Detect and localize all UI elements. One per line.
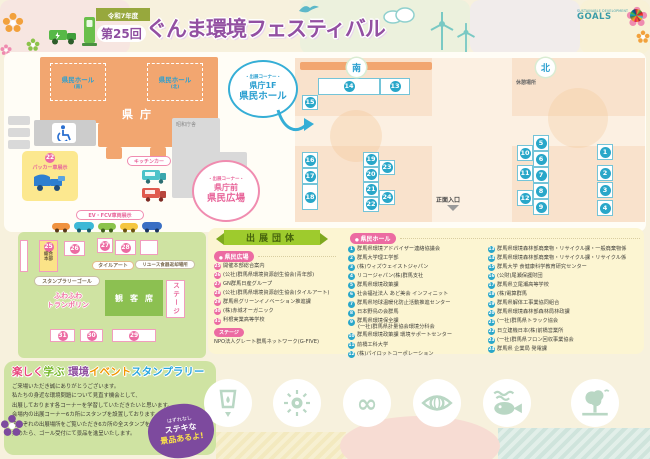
exhibitor-row: 3 (株)ウィズウェイストジャパン [348,264,486,271]
sdg-circle: ∞ [343,379,391,427]
sdg-circle [571,379,619,427]
sdg-circle [273,379,321,427]
corner-line1: 県庁1F [249,81,276,91]
exhibitor-number: 31 [214,318,221,325]
exhibitor-row: 26 (公社)群馬県環境資源創生協会(青年部) [214,272,339,279]
sdgs-goals-text: GOALS [577,13,628,22]
exhibitor-number: 20 [488,310,495,317]
exhibitor-name: 群馬県解体工事業協同組合 [497,300,559,306]
booth-number: 12 [520,193,531,204]
exhibitor-name-wrap: 前橋工科大学 [357,342,388,348]
hq-label: 本部 [44,257,53,262]
reuse-return-box [140,240,158,255]
exhibitor-name: (株)赤城オーガニック [223,308,274,314]
booth-number: 21 [366,184,377,195]
wheelchair-icon [57,125,71,141]
description-line: 出展しております各コーナーを学習していただきたいと思います。 [12,402,173,411]
deco-stripes [216,432,346,459]
exhibitor-number: 23 [488,337,495,344]
description-line: 私たちの身近な環境問題について見直す機会として、 [12,392,173,401]
booth-cell: 23 [379,160,395,175]
eye-globe-icon [420,386,454,420]
booth-number: 7 [536,170,547,181]
exhibitor-name-wrap: 群馬県グリーンイノベーション推進課 [223,299,311,305]
booth-cell: 1 [597,144,613,160]
exhibitor-number: 9 [348,319,355,326]
exhibitor-name-wrap: 群馬県環境政策課 [357,282,399,288]
stage-box: ステージ [166,280,185,318]
corner-line2: 県民ホール [239,91,287,103]
wind-turbine-icon [450,20,482,54]
exhibitor-number: 18 [488,291,495,298]
hall-south-wing: 県民ホール (南) [50,63,106,101]
exhibitor-name: GN群馬日産グループ [223,281,272,287]
exhibitor-number: 25 [214,263,221,270]
era-ribbon: 令和7年度 [96,8,150,21]
green-truck-icon [48,26,80,46]
flower-icon [26,38,40,52]
booth-number: 5 [536,138,547,149]
exhibitor-name-wrap: 群馬県環境保全課 (一社)群馬県計量協会環境分科会 [357,319,435,331]
description-line: ご来場いただき誠にありがとうございます。 [12,383,173,392]
exhibitor-name-wrap: (公社)群馬県環境資源創生協会(青年部) [223,272,314,278]
exhibitor-name: 群馬県環境森林部森林局林政課 [497,309,570,315]
sdgs-logo: SUSTAINABLE DEVELOPMENT GOALS [577,9,643,22]
exhibitor-row: 8 日本野鳥の会群馬 [348,310,486,317]
exhibitor-number: 7 [348,301,355,308]
plaza-exhibitor-list: 25 開催本部総合案内 26 (公社)群馬県環境資源創生協会(青年部) 27 G… [214,263,339,327]
booth-cell: 3 [597,182,613,198]
booth-number: 25 [44,242,54,252]
hall-north-wing: 県民ホール (北) [147,63,203,101]
exhibitor-name-wrap: 日本野鳥の会群馬 [357,310,399,316]
booth-number: 17 [305,171,316,182]
exhibitor-name: (公財)尾瀬保護財団 [497,273,543,279]
booth-cell: 2 [597,165,613,181]
exhibitor-name-wrap: (株)ウィズウェイストジャパン [357,264,428,270]
ev-charger-icon [82,16,97,46]
exhibitor-number: 2 [348,255,355,262]
exhibitor-name: (株)電算群馬 [497,291,527,297]
exhibitor-name: 群馬県環境アドバイザー連絡協議会 [357,246,440,252]
deco-stripes [498,428,650,459]
wing-label: 県民ホール [62,74,95,84]
stamp-goal-label: スタンプラリーゴール [34,276,100,286]
trampoline-line1: ふわふわ [38,292,98,301]
booth-cell: 11 [517,165,533,181]
exhibitor-name-wrap: 利根実業高等学校 [223,318,265,324]
exhibitor-name: (株)ウィズウェイストジャパン [357,264,428,270]
north-badge: 北 [536,58,555,77]
hall-exhibitor-list-left: 1 群馬県環境アドバイザー連絡協議会 2 群馬大学理工学部 3 (株)ウィズウェ… [348,246,486,360]
description-line: 会場内の出展コーナー6カ所にスタンプを設置しております。 [12,411,173,420]
sdgs-wheel-icon [630,9,643,22]
flower-icon [636,30,650,44]
divider [400,238,640,239]
title-part: 環境 [68,366,89,378]
exhibitor-name: 群馬県環境政策課 環境サポートセンター [357,332,452,338]
booth-number: 4 [600,203,611,214]
booth-cell: 29 [112,329,156,342]
booth-cell: 28 [115,240,136,255]
exhibitor-name-wrap: (一社)群馬県トラック協会 [497,319,558,325]
exhibitor-number: 10 [348,333,355,340]
booth-cell: 19 [363,152,379,167]
booth-number: 1 [600,147,611,158]
title-part: イベント [89,366,131,378]
exhibitor-name-cont: (一社)群馬県計量協会環境分科会 [358,325,435,331]
exhibitor-name-wrap: 群馬県環境森林部廃棄物・リサイクル課・リサイクル係 [497,255,626,261]
wing-label: 県民ホール [159,74,192,84]
map-decoration [548,88,608,148]
exhibitor-name: 前橋工科大学 [357,342,388,348]
exhibitor-name-wrap: 群馬県 企業局 発電課 [497,346,547,352]
garbage-truck-icon [30,171,70,193]
exhibitor-name: (一社)群馬県トラック協会 [497,318,558,324]
packer-label: パッカー車展示 [32,164,67,171]
exhibitor-row: 5 群馬県環境政策課 [348,282,486,289]
exhibitor-row: 22 日立建機日本(株)前橋営業所 [488,328,644,335]
exhibitor-name: (一社)群馬県フロン回収事業協会 [497,337,574,343]
kencho-label: 県庁 [88,106,192,122]
title-part: 学ぶ [44,366,69,378]
stamp-rally-title: 楽しく学ぶ 環境イベントスタンプラリー [12,364,204,379]
exhibitor-row: 19 群馬県解体工事業協同組合 [488,301,644,308]
exhibitor-row: 7 群馬県地球温暖化防止活動推進センター [348,301,486,308]
exhibitor-name-wrap: 群馬県環境森林部森林局林政課 [497,310,570,316]
flower-icon [0,414,24,438]
infinity-icon: ∞ [357,391,378,416]
exhibitor-number: 28 [214,290,221,297]
booth-number: 22 [45,153,55,163]
exhibitor-name-wrap: (株)パイロットコーポレーション [357,351,434,357]
exhibitor-name: 群馬県 企業局 発電課 [497,346,547,352]
exhibitor-name-wrap: 群馬大学 食健康科学教育研究センター [497,264,587,270]
exhibitor-row: 21 (一社)群馬県トラック協会 [488,319,644,326]
booth-cell: 6 [533,151,549,167]
exhibitor-name-wrap: 開催本部総合案内 [223,263,265,269]
kencho-building [106,147,122,159]
booth-number: 19 [366,154,377,165]
exhibitor-name-wrap: (公財)尾瀬保護財団 [497,273,543,279]
showa-label: 昭和庁舎 [176,121,196,128]
exhibitor-row: 24 群馬県 企業局 発電課 [488,346,644,353]
event-flyer: 令和7年度 第25回 ぐんま環境フェスティバル SUSTAINABLE DEVE… [0,0,650,459]
sdg-circle [483,379,531,427]
exhibitor-number: 4 [348,273,355,280]
exhibitor-row: 13 群馬県環境森林部廃棄物・リサイクル課・一般廃棄物係 [488,246,644,253]
exhibitor-name: 群馬大学 食健康科学教育研究センター [497,264,587,270]
exhibitor-number: 12 [348,351,355,358]
exhibitor-number: 17 [488,282,495,289]
booth-cell: 30 [80,329,103,342]
exhibitor-name: 群馬大学理工学部 [357,255,399,261]
exhibitor-row: 31 利根実業高等学校 [214,318,339,325]
parking-block [8,128,30,137]
booth-number: 28 [121,243,131,253]
corner-line2: 県民広場 [207,193,245,205]
booth-cell: 12 [517,190,533,206]
exhibitor-name-wrap: 群馬県環境政策課 環境サポートセンター [357,333,452,339]
tree-icon [578,386,612,420]
exhibitor-name: 群馬県環境政策課 [357,282,399,288]
trampoline-line2: トランポリン [38,301,98,310]
stage-exhibitor: NPO法人グレート群馬ネットワーク(G-FIVE) [214,338,319,345]
exhibitor-row: 27 GN群馬日産グループ [214,281,339,288]
exhibitor-number: 26 [214,272,221,279]
booth-cell: 13 [380,78,410,95]
booth-cell: 9 [533,199,549,215]
exhibitor-row: 29 群馬県グリーンイノベーション推進課 [214,299,339,306]
exhibitor-name: リコージャパン(株)群馬支社 [357,273,423,279]
section-badge: 県民ホール [350,233,396,244]
wing-sublabel: (南) [74,84,83,90]
booth-number: 27 [100,241,110,251]
kencho-building [98,123,178,147]
booth-number: 30 [87,331,97,341]
booth-cell: 24 [379,190,395,205]
exhibitor-name: 群馬県地球温暖化防止活動推進センター [357,300,450,306]
entrance-label: 正面入口 [436,195,460,204]
corner-line1: 県庁前 [214,183,238,193]
entrance-arrow-icon [447,205,459,211]
exhibitor-row: 20 群馬県環境森林部森林局林政課 [488,310,644,317]
exhibitor-name-wrap: 社会福祉法人 あど美会 インフィニット [357,291,448,297]
fish-icon [490,386,524,420]
pastel-shape [470,0,580,54]
arrow-icon [272,106,316,140]
exhibitor-row: 12 (株)パイロットコーポレーション [348,351,486,358]
exhibitor-name: 群馬県立尾瀬高等学校 [497,282,549,288]
exhibitor-name: 利根実業高等学校 [223,317,265,323]
exhibitor-number: 27 [214,281,221,288]
exhibitor-number: 14 [488,255,495,262]
booth-cell: 4 [597,200,613,216]
booth-cell: 7 [533,167,549,183]
cloud-icon [382,6,416,24]
booth-number: 3 [600,185,611,196]
booth-number: 2 [600,168,611,179]
exhibitor-number: 24 [488,346,495,353]
booth-cell: 20 [363,167,379,182]
flower-icon [2,12,24,34]
booth-cell: 8 [533,183,549,199]
exhibitor-name-wrap: 日立建機日本(株)前橋営業所 [497,328,563,334]
exhibitor-row: 2 群馬大学理工学部 [348,255,486,262]
exhibitor-number: 1 [348,246,355,253]
hall-wall [300,62,432,70]
exhibitor-name-wrap: 群馬大学理工学部 [357,255,399,261]
stage-section-badge: ステージ [214,328,244,337]
booth-number: 16 [305,155,316,166]
exhibitor-number: 22 [488,328,495,335]
water-glass-icon [212,387,244,419]
booth-cell: 22 [363,197,379,212]
exhibitor-number: 16 [488,273,495,280]
exhibitor-name-wrap: 群馬県環境アドバイザー連絡協議会 [357,246,440,252]
plaza-corner-badge: ・出展コーナー・ 県庁前 県民広場 [192,160,260,222]
exhibitor-row: 11 前橋工科大学 [348,342,486,349]
booth-number: 18 [305,192,316,203]
audience-seats: 観客席 [105,280,163,316]
exhibitor-row: 23 (一社)群馬県フロン回収事業協会 [488,337,644,344]
exhibitor-name-wrap: 群馬県環境森林部廃棄物・リサイクル課・一般廃棄物係 [497,246,626,252]
exhibitor-number: 29 [214,299,221,306]
booth-cell: 16 [302,152,318,168]
exhibitor-name: (公社)群馬県環境資源創生協会(タイルアート) [223,290,329,296]
exhibitor-number: 15 [488,264,495,271]
exhibitor-row: 17 群馬県立尾瀬高等学校 [488,282,644,289]
title-part: 楽しく [12,366,44,378]
exhibitor-number: 13 [488,246,495,253]
exhibitor-row: 1 群馬県環境アドバイザー連絡協議会 [348,246,486,253]
exhibitor-row: 28 (公社)群馬県環境資源創生協会(タイルアート) [214,290,339,297]
hall-exhibitor-list-right: 13 群馬県環境森林部廃棄物・リサイクル課・一般廃棄物係 14 群馬県環境森林部… [488,246,644,355]
booth-cell: 5 [533,135,549,151]
exhibitor-row: 14 群馬県環境森林部廃棄物・リサイクル課・リサイクル係 [488,255,644,262]
kitchen-car-label: キッチンカー [127,156,171,166]
booth-cell: 17 [302,168,318,184]
exhibitor-row: 4 リコージャパン(株)群馬支社 [348,273,486,280]
exhibitor-row: 6 社会福祉法人 あど美会 インフィニット [348,291,486,298]
exhibitor-name-wrap: GN群馬日産グループ [223,281,272,287]
exhibitor-name: 日本野鳥の会群馬 [357,309,399,315]
exhibitor-number: 3 [348,264,355,271]
plaza-section-header: 県民広場 [214,251,336,262]
wing-sublabel: (北) [171,84,180,90]
exhibitor-name: 社会福祉法人 あど美会 インフィニット [357,291,448,297]
divider [258,256,336,257]
booth-number: 13 [390,81,401,92]
exhibitor-name-wrap: (株)赤城オーガニック [223,308,274,314]
edition-label: 第25回 [97,25,146,42]
booth-cell: 27 [97,238,113,253]
accessible-parking [52,123,76,143]
reuse-label: リユース食器返却場所 [135,260,195,269]
food-truck-icon [141,168,167,184]
booth-number: 14 [344,81,355,92]
booth-cell: 21 [363,182,379,197]
exhibitor-name-wrap: (公社)群馬県環境資源創生協会(タイルアート) [223,290,329,296]
sun-energy-icon [281,387,313,419]
exhibitor-row: 10 群馬県環境政策課 環境サポートセンター [348,333,486,340]
exhibitor-number: 19 [488,301,495,308]
booth-number: 8 [536,186,547,197]
booth-cell: 18 [302,184,318,210]
exhibitor-name-wrap: (一社)群馬県フロン回収事業協会 [497,337,574,343]
booth-number: 11 [520,168,531,179]
booth-number: 22 [366,199,377,210]
parking-block [8,116,30,125]
exhibitor-number: 6 [348,291,355,298]
booth-number: 20 [366,169,377,180]
exhibitor-number: 30 [214,308,221,315]
title-part: スタンプラリー [131,366,204,378]
booth-number: 10 [520,148,531,159]
booth-cell: 10 [517,145,533,161]
exhibitor-name-wrap: 群馬県立尾瀬高等学校 [497,282,549,288]
exhibitor-name: (公社)群馬県環境資源創生協会(青年部) [223,272,314,278]
exhibitor-name: 開催本部総合案内 [223,263,265,269]
booth-cell: 26 [64,241,85,256]
booth-number: 9 [536,202,547,213]
section-badge: 県民広場 [214,251,254,262]
packer-truck-area: 22 パッカー車展示 [22,151,78,201]
panel-title-ribbon: 出展団体 [224,230,320,245]
booth-number: 6 [536,154,547,165]
page-title: ぐんま環境フェスティバル [146,13,385,43]
booth-cell: 31 [50,329,75,342]
exhibitor-name: 群馬県環境森林部廃棄物・リサイクル課・リサイクル係 [497,255,626,261]
booth-number: 29 [129,331,139,341]
exhibitor-name-wrap: 群馬県地球温暖化防止活動推進センター [357,301,450,307]
exhibitor-number: 21 [488,319,495,326]
exhibitor-row: 16 (公財)尾瀬保護財団 [488,273,644,280]
booth-number: 23 [382,162,393,173]
trampoline-label: ふわふわ トランポリン [38,292,98,310]
parking-block [8,140,30,149]
sdg-circle [413,379,461,427]
exhibitor-name: 群馬県グリーンイノベーション推進課 [223,299,311,305]
exhibitor-name-wrap: 群馬県解体工事業協同組合 [497,301,559,307]
exhibitor-number: 5 [348,282,355,289]
stage-label: ステージ [171,282,181,316]
exhibitor-row: 25 開催本部総合案内 [214,263,339,270]
exhibitor-row: 15 群馬大学 食健康科学教育研究センター [488,264,644,271]
exhibitor-row: 30 (株)赤城オーガニック [214,308,339,315]
exhibitor-name: 日立建機日本(株)前橋営業所 [497,328,563,334]
exhibitor-row: 9 群馬県環境保全課 (一社)群馬県計量協会環境分科会 [348,319,486,331]
south-badge: 南 [347,58,366,77]
plaza-booth-box [20,240,28,272]
hq-booth: 25 総合 本部 [39,240,58,272]
exhibitor-name-wrap: リコージャパン(株)群馬支社 [357,273,423,279]
exhibitor-number: 11 [348,342,355,349]
car-row-icon [52,220,162,233]
food-truck-icon [141,186,167,202]
booth-number: 31 [58,331,68,341]
booth-number: 26 [70,244,80,254]
hall-section-header: 県民ホール [350,233,640,244]
booth-number: 24 [382,192,393,203]
booth-cell: 14 [318,78,380,95]
rest-area-label: 休憩場所 [516,79,536,86]
exhibitor-row: 18 (株)電算群馬 [488,291,644,298]
exhibitor-number: 8 [348,310,355,317]
ev-display-label: EV・FCV車両展示 [76,210,144,220]
exhibitor-name-wrap: (株)電算群馬 [497,291,527,297]
exhibitor-name: 群馬県環境森林部廃棄物・リサイクル課・一般廃棄物係 [497,246,626,252]
tile-art-label: タイルアート [92,261,134,270]
exhibitor-name: (株)パイロットコーポレーション [357,351,434,357]
